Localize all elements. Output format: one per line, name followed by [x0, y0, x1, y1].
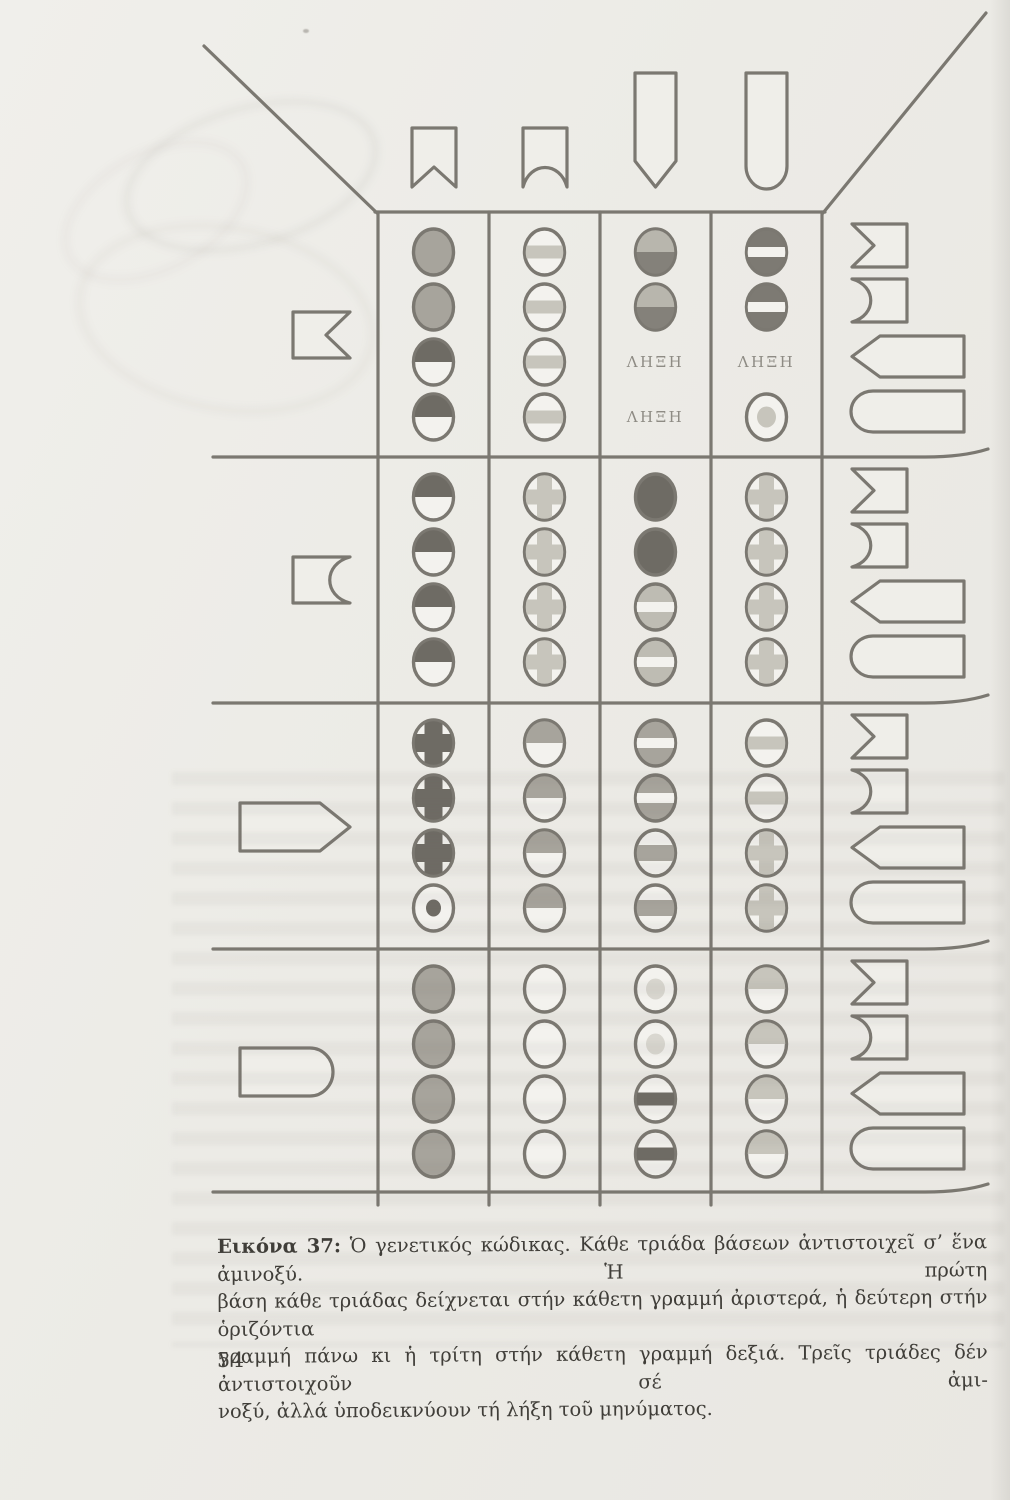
codon-circle-pattern — [414, 584, 454, 607]
third-base-stacks — [851, 224, 964, 1169]
page-number: 54 — [217, 1348, 245, 1372]
first-base-label-point — [240, 803, 350, 851]
codon-circle-solid-medium — [414, 229, 454, 275]
codon-circle-pattern — [525, 246, 565, 259]
caption-line: γραμμή πάνω κι ἡ τρίτη στήν κάθετη γραμμ… — [218, 1338, 988, 1398]
codon-circle-solid-medium — [414, 966, 454, 1012]
second-base-header-notch-v — [412, 128, 456, 187]
codon-circle-pattern — [747, 966, 787, 989]
codon-circle-pattern — [426, 900, 441, 917]
codon-circle-pattern — [414, 529, 454, 552]
second-base-headers — [412, 73, 787, 189]
figure-caption: Εικόνα 37: Ὁ γενετικός κώδικας. Κάθε τρι… — [217, 1228, 988, 1425]
codon-circle-pattern — [747, 1021, 787, 1044]
funnel-right-edge — [823, 13, 986, 213]
stop-label: ΛΗΞΗ — [626, 353, 685, 371]
caption-line: Εικόνα 37: Ὁ γενετικός κώδικας. Κάθε τρι… — [217, 1228, 987, 1288]
first-base-label-notch-v — [293, 312, 350, 358]
caption-line: βάση κάθε τριάδας δείχνεται στήν κάθετη … — [217, 1283, 987, 1343]
codon-circle-solid-medium — [414, 1021, 454, 1067]
codon-circle-pattern — [525, 775, 565, 798]
codon-circle-pattern — [414, 474, 454, 497]
caption-line: νοξύ, ἀλλά ὑποδεικνύουν τή λήξη τοῦ μηνύ… — [218, 1393, 988, 1425]
second-base-header-notch-round — [523, 128, 567, 187]
third-base-shape-round — [851, 882, 964, 923]
codon-circle-solid-medium — [414, 284, 454, 330]
codon-circle-pattern — [747, 1076, 787, 1099]
codon-circle-pattern — [636, 738, 676, 748]
second-base-header-round — [746, 73, 787, 189]
codon-circle-pattern — [747, 247, 787, 257]
third-base-shape-notch-round — [852, 770, 907, 813]
codon-circle-pattern — [636, 602, 676, 612]
codon-circle-pattern — [646, 1034, 665, 1055]
third-base-shape-point — [852, 336, 964, 377]
codon-circle-pattern — [646, 979, 665, 1000]
third-base-shape-round — [851, 636, 964, 677]
third-base-shape-notch-v — [852, 469, 907, 512]
codon-circle-pattern — [636, 1148, 676, 1161]
codon-circle-pattern — [414, 339, 454, 362]
codon-circle-pattern — [636, 845, 676, 861]
third-base-shape-point — [852, 1073, 964, 1114]
third-base-shape-notch-v — [852, 224, 907, 267]
codon-circle-empty — [525, 966, 565, 1012]
third-base-shape-notch-v — [852, 715, 907, 758]
second-base-header-point — [635, 73, 676, 187]
codon-circle-pattern — [525, 301, 565, 314]
funnel-left-edge — [204, 46, 377, 213]
codon-circle-pattern — [414, 639, 454, 662]
caption-figure-label: Εικόνα 37: — [217, 1234, 341, 1258]
first-base-label-round — [240, 1048, 333, 1096]
codon-circle-pattern — [757, 407, 776, 428]
third-base-shape-notch-round — [852, 524, 907, 567]
third-base-shape-notch-v — [852, 961, 907, 1004]
stop-label: ΛΗΞΗ — [626, 408, 685, 426]
codon-circle-pattern — [747, 792, 787, 805]
stop-label: ΛΗΞΗ — [737, 353, 796, 371]
third-base-shape-notch-round — [852, 279, 907, 322]
codon-circle-empty — [525, 1021, 565, 1067]
third-base-shape-round — [851, 391, 964, 432]
third-base-shape-round — [851, 1128, 964, 1169]
codon-circle-pattern — [525, 411, 565, 424]
codon-circle-solid-medium — [414, 1131, 454, 1177]
codon-circle-pattern — [747, 737, 787, 750]
codon-circle-pattern — [525, 720, 565, 743]
codon-circle-solid-dark — [636, 474, 676, 520]
codon-circle-pattern — [747, 302, 787, 312]
codon-circle-empty — [525, 1131, 565, 1177]
first-base-label-notch-round — [293, 557, 350, 603]
codon-circle-pattern — [525, 356, 565, 369]
codon-circle-pattern — [414, 394, 454, 417]
codon-circle-pattern — [636, 900, 676, 916]
codon-circle-pattern — [525, 830, 565, 853]
codon-circle-solid-medium — [414, 1076, 454, 1122]
codon-circle-pattern — [636, 1093, 676, 1106]
codon-circle-pattern — [636, 793, 676, 803]
third-base-shape-point — [852, 827, 964, 868]
codon-circle-pattern — [747, 1131, 787, 1154]
codon-circle-pattern — [636, 657, 676, 667]
codon-circle-pattern — [525, 885, 565, 908]
third-base-shape-notch-round — [852, 1016, 907, 1059]
third-base-shape-point — [852, 581, 964, 622]
scanned-book-page: ΛΗΞΗΛΗΞΗΛΗΞΗ Εικόνα 37: Ὁ γενετικός κώδι… — [0, 0, 1010, 1500]
codon-circle-empty — [525, 1076, 565, 1122]
codon-circle-solid-dark — [636, 529, 676, 575]
